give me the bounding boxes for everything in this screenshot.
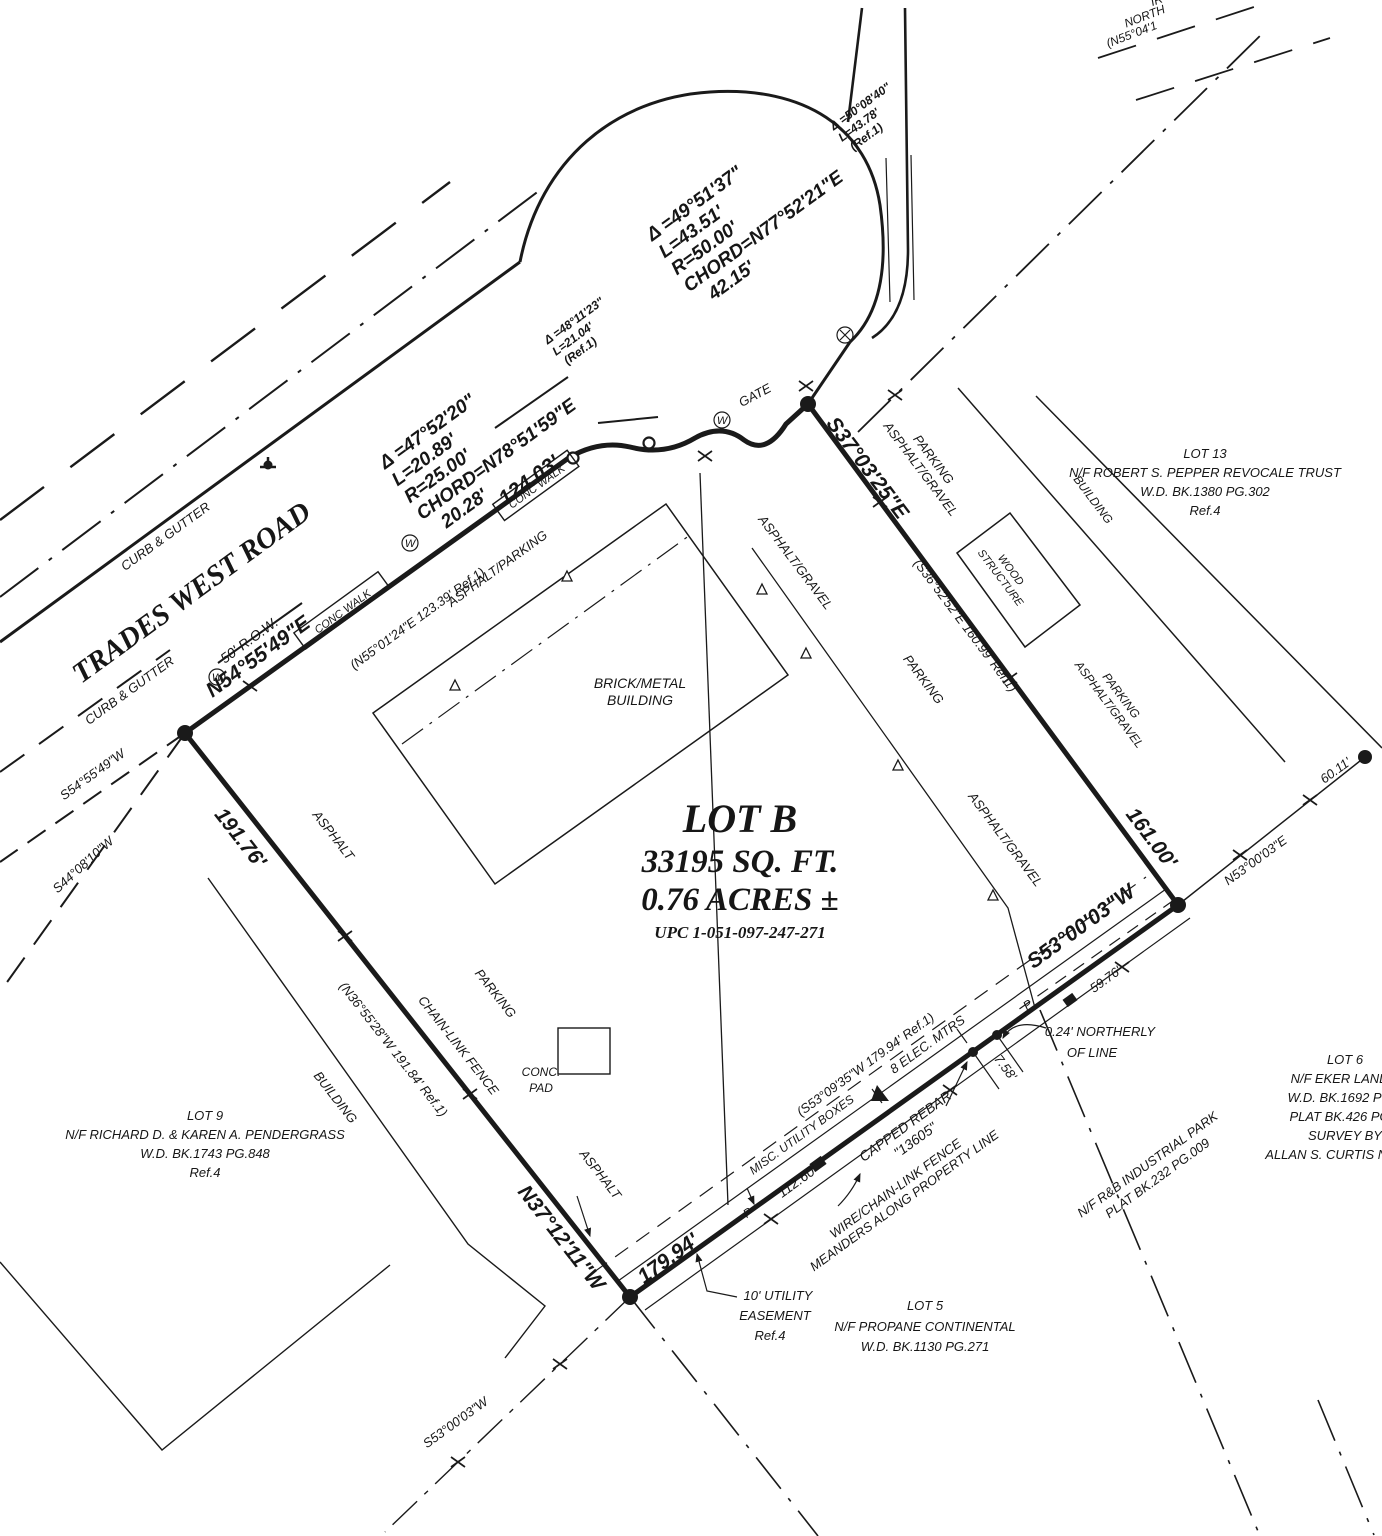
easement-label-2: EASEMENT: [739, 1308, 812, 1323]
curb-gutter-upper: CURB & GUTTER: [118, 499, 213, 574]
found-pin-2: [644, 438, 655, 449]
lot13-parking-block: PARKING ASPHALT/GRAVEL: [1071, 649, 1158, 751]
lot9-building-edge-2: [0, 1262, 390, 1450]
water-meter-icon: W: [405, 538, 417, 550]
corner-monument-east: [1170, 897, 1186, 913]
lot6-deed: W.D. BK.1692 PG.8: [1287, 1090, 1382, 1105]
asphalt-gravel-low-label: ASPHALT/GRAVEL: [965, 788, 1046, 889]
ne-road-walk-lines: [886, 155, 914, 302]
parking-west-label: PARKING: [472, 966, 519, 1021]
utility-pole-icon: [837, 327, 853, 343]
elec-arrowhead: [871, 1085, 889, 1101]
parking-mid-label: PARKING: [900, 652, 947, 707]
culdesac-neck: [812, 342, 850, 398]
ne-centerline-dashdot: [858, 28, 1268, 432]
curve-data-1: Δ =47°52'20" L=20.89' R=25.00' CHORD=N78…: [375, 343, 594, 542]
lot13-title: LOT 13: [1183, 446, 1227, 461]
conc-pad-label-2: PAD: [529, 1081, 553, 1095]
offsite-road-dash-2: [1136, 38, 1330, 100]
easement-label-3: Ref.4: [754, 1328, 785, 1343]
lot5-owner: N/F PROPANE CONTINENTAL: [834, 1319, 1015, 1334]
entrance-mark: [598, 417, 658, 423]
lot9-ref: Ref.4: [189, 1165, 220, 1180]
lot5-deed: W.D. BK.1130 PG.271: [861, 1339, 990, 1354]
lot13-block: LOT 13 N/F ROBERT S. PEPPER REVOCALE TRU…: [1069, 446, 1342, 518]
asphalt-west-label: ASPHALT: [309, 807, 358, 864]
detail-linework: [0, 388, 1382, 1450]
road-labels: TRADES WEST ROAD 50' R.O.W. CURB & GUTTE…: [66, 0, 1167, 728]
monument-far-east: [1358, 750, 1372, 764]
lot6-survey-by: SURVEY BY: [1308, 1128, 1382, 1143]
s44-extension-label: S44°08'10"W: [49, 832, 117, 896]
curve-data-3: Δ =49°51'37" L=43.51' R=50.00' CHORD=N77…: [642, 115, 861, 314]
fire-hydrant-icon: [260, 457, 276, 470]
water-meter-icon: W: [717, 415, 729, 427]
conc-pad-label-1: CONC.: [522, 1065, 561, 1079]
conc-pad-outline: [558, 1028, 610, 1074]
asphalt-south-label: ASPHALT: [576, 1146, 625, 1203]
lot-b-upc: UPC 1-051-097-247-271: [654, 923, 825, 942]
s54-extension-label: S54°55'49"W: [57, 745, 129, 803]
lot-b-acres: 0.76 ACRES ±: [641, 882, 839, 918]
gate-label: GATE: [736, 380, 774, 410]
elec-mtr-line-nw: [618, 889, 1166, 1281]
lot9-block: LOT 9 N/F RICHARD D. & KAREN A. PENDERGR…: [65, 1108, 345, 1180]
lot13-deed: W.D. BK.1380 PG.302: [1140, 484, 1270, 499]
curve-data-2: Δ =48°11'23" L=21.04' (Ref.1): [540, 294, 623, 370]
lot6-block: LOT 6 N/F EKER LAND L W.D. BK.1692 PG.8 …: [1264, 1052, 1382, 1162]
building-label-1: BRICK/METAL: [594, 675, 686, 691]
lot9-building-label: BUILDING: [311, 1068, 361, 1126]
rb-owner: N/F R&B INDUSTRIAL PARK: [1074, 1108, 1221, 1221]
corner-monument-north: [800, 396, 816, 412]
lot5-block: LOT 5 N/F PROPANE CONTINENTAL W.D. BK.11…: [834, 1298, 1015, 1354]
lot6-surveyor: ALLAN S. CURTIS N.M.L.S: [1264, 1147, 1382, 1162]
lot-b-name: LOT B: [682, 796, 797, 841]
asphalt-gravel-mid-label: ASPHALT/GRAVEL: [755, 511, 836, 612]
lot6-owner: N/F EKER LAND L: [1291, 1071, 1382, 1086]
ne-tie-line: [1178, 757, 1365, 905]
northerly-label-1: 0.24' NORTHERLY: [1045, 1024, 1156, 1039]
curve-data-4: Δ =50°08'40" L=43.78' (Ref.1): [826, 80, 909, 157]
lot9-owner: N/F RICHARD D. & KAREN A. PENDERGRASS: [65, 1127, 345, 1142]
boundary-west: [185, 733, 630, 1297]
sw-fence-bearing: S53°00'03"W: [420, 1393, 492, 1451]
wire-fence-leader: [838, 1174, 860, 1206]
easement-leader: [697, 1254, 737, 1297]
curb-dash-upper: [0, 182, 450, 520]
se-dim-11260: 112.60': [774, 1161, 820, 1201]
lot5-title: LOT 5: [907, 1298, 944, 1313]
rb-boundary-dashdot-2: [1318, 1400, 1374, 1535]
easement-label-1: 10' UTILITY: [744, 1288, 814, 1303]
lot6-plat: PLAT BK.426 PG.0: [1289, 1109, 1382, 1124]
se-record-ref: (S53°09'35"W 179.94' Ref.1): [794, 1010, 937, 1120]
boundary-southeast: [630, 905, 1178, 1297]
lot6-title: LOT 6: [1327, 1052, 1364, 1067]
corner-monument-west: [177, 725, 193, 741]
northerly-label-2: OF LINE: [1067, 1045, 1118, 1060]
rebar-dot-1: [968, 1047, 978, 1057]
lot9-title: LOT 9: [187, 1108, 223, 1123]
se-distance: 179.94': [633, 1229, 703, 1289]
ne-tie-bearing: N53°00'03"E: [1221, 832, 1290, 888]
lot13-ref: Ref.4: [1189, 503, 1220, 518]
sw-fence-line: [385, 1297, 630, 1532]
west-extension-dashdot: [630, 1297, 818, 1536]
lot9-deed: W.D. BK.1743 PG.848: [140, 1146, 270, 1161]
west-distance: 191.76': [210, 804, 271, 874]
building-ridge-dashdot: [402, 535, 690, 744]
lot-b-block: LOT B 33195 SQ. FT. 0.76 ACRES ± UPC 1-0…: [522, 675, 839, 1095]
lot9-building-edge: [208, 878, 545, 1358]
misc-boxes-leader: [747, 1188, 754, 1204]
se-bearing: S53°00'03"W: [1023, 879, 1141, 974]
survey-plat: W W W TRADES WEST ROAD 50' R.O.W. CURB &…: [0, 0, 1382, 1536]
rb-boundary-dashdot: [1040, 1010, 1260, 1536]
leader-lines: [577, 1025, 1046, 1297]
west-bearing: N37°12'11"W: [513, 1181, 611, 1297]
lot13-owner: N/F ROBERT S. PEPPER REVOCALE TRUST: [1069, 465, 1342, 480]
s54-extension-dash: [0, 733, 185, 862]
rebar-dot-2: [992, 1030, 1002, 1040]
se-dim-758: 7.58': [991, 1052, 1020, 1084]
lot-b-sqft: 33195 SQ. FT.: [641, 844, 839, 880]
rb-industrial-block: N/F R&B INDUSTRIAL PARK PLAT BK.232 PG.0…: [1074, 1108, 1231, 1234]
lot-boundary: [185, 404, 1374, 1536]
corner-monument-south: [622, 1289, 638, 1305]
conc-walk-box-1: CONC WALK: [294, 572, 390, 649]
building-label-2: BUILDING: [607, 692, 673, 708]
lot13-building-label: BUILDING: [1071, 473, 1116, 527]
wood-structure-block: WOOD STRUCTURE: [975, 539, 1036, 609]
